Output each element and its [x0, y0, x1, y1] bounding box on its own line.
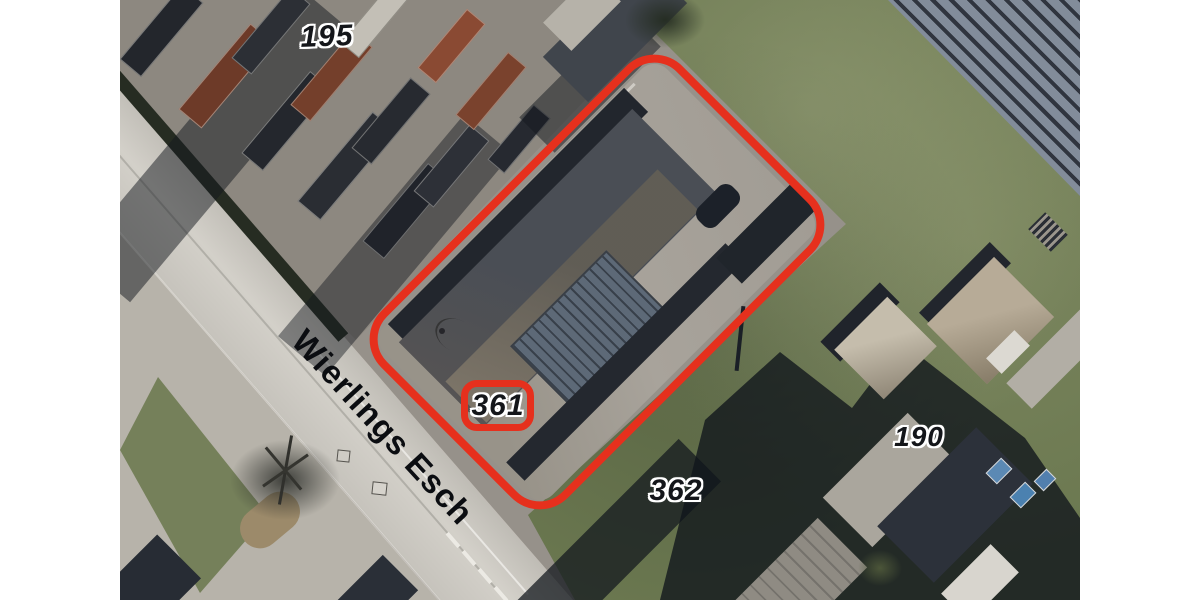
right-letterbox-margin — [1080, 0, 1200, 600]
parcel-label-190: 190 — [894, 423, 944, 451]
tree-cluster — [625, 0, 705, 48]
parcel-label-362: 362 — [649, 476, 702, 506]
map-screenshot: 195 361 362 190 Wierlings Esch — [0, 0, 1200, 600]
parcel-label-195: 195 — [300, 21, 354, 53]
aerial-map-viewport: 195 361 362 190 Wierlings Esch — [120, 0, 1080, 600]
left-letterbox-margin — [0, 0, 120, 600]
utility-box — [371, 481, 387, 495]
bush — [858, 550, 902, 586]
utility-box — [336, 449, 350, 462]
parcel-label-361: 361 — [471, 391, 524, 421]
